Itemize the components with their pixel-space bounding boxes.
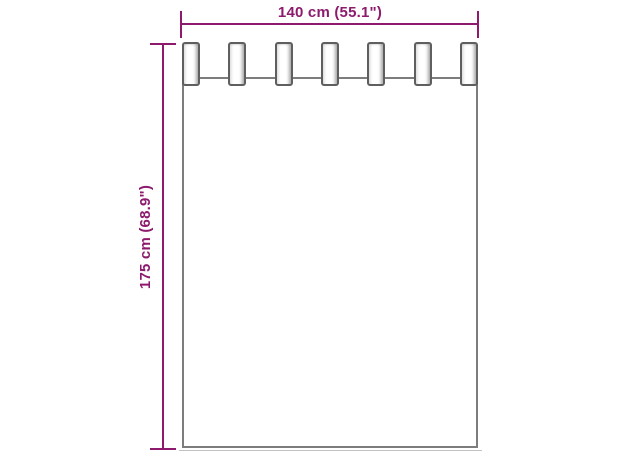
curtain-tab — [460, 42, 478, 86]
height-dimension-label: 175 cm (68.9") — [137, 137, 157, 337]
curtain-hem-line — [179, 450, 482, 451]
width-dimension-tick-right — [477, 11, 479, 38]
height-dimension-tick-bottom — [150, 448, 176, 450]
curtain-tab — [321, 42, 339, 86]
curtain-tab — [182, 42, 200, 86]
width-dimension-label: 140 cm (55.1") — [181, 4, 479, 21]
product-dimension-diagram: 140 cm (55.1") 175 cm (68.9") — [0, 0, 624, 460]
height-dimension-tick-top — [150, 43, 176, 45]
width-dimension-line — [181, 23, 479, 25]
curtain-tab — [414, 42, 432, 86]
curtain-tab — [275, 42, 293, 86]
curtain-tab — [228, 42, 246, 86]
curtain-tab — [367, 42, 385, 86]
curtain-body — [182, 77, 478, 448]
height-dimension-line — [162, 44, 164, 450]
width-dimension-tick-left — [180, 11, 182, 38]
